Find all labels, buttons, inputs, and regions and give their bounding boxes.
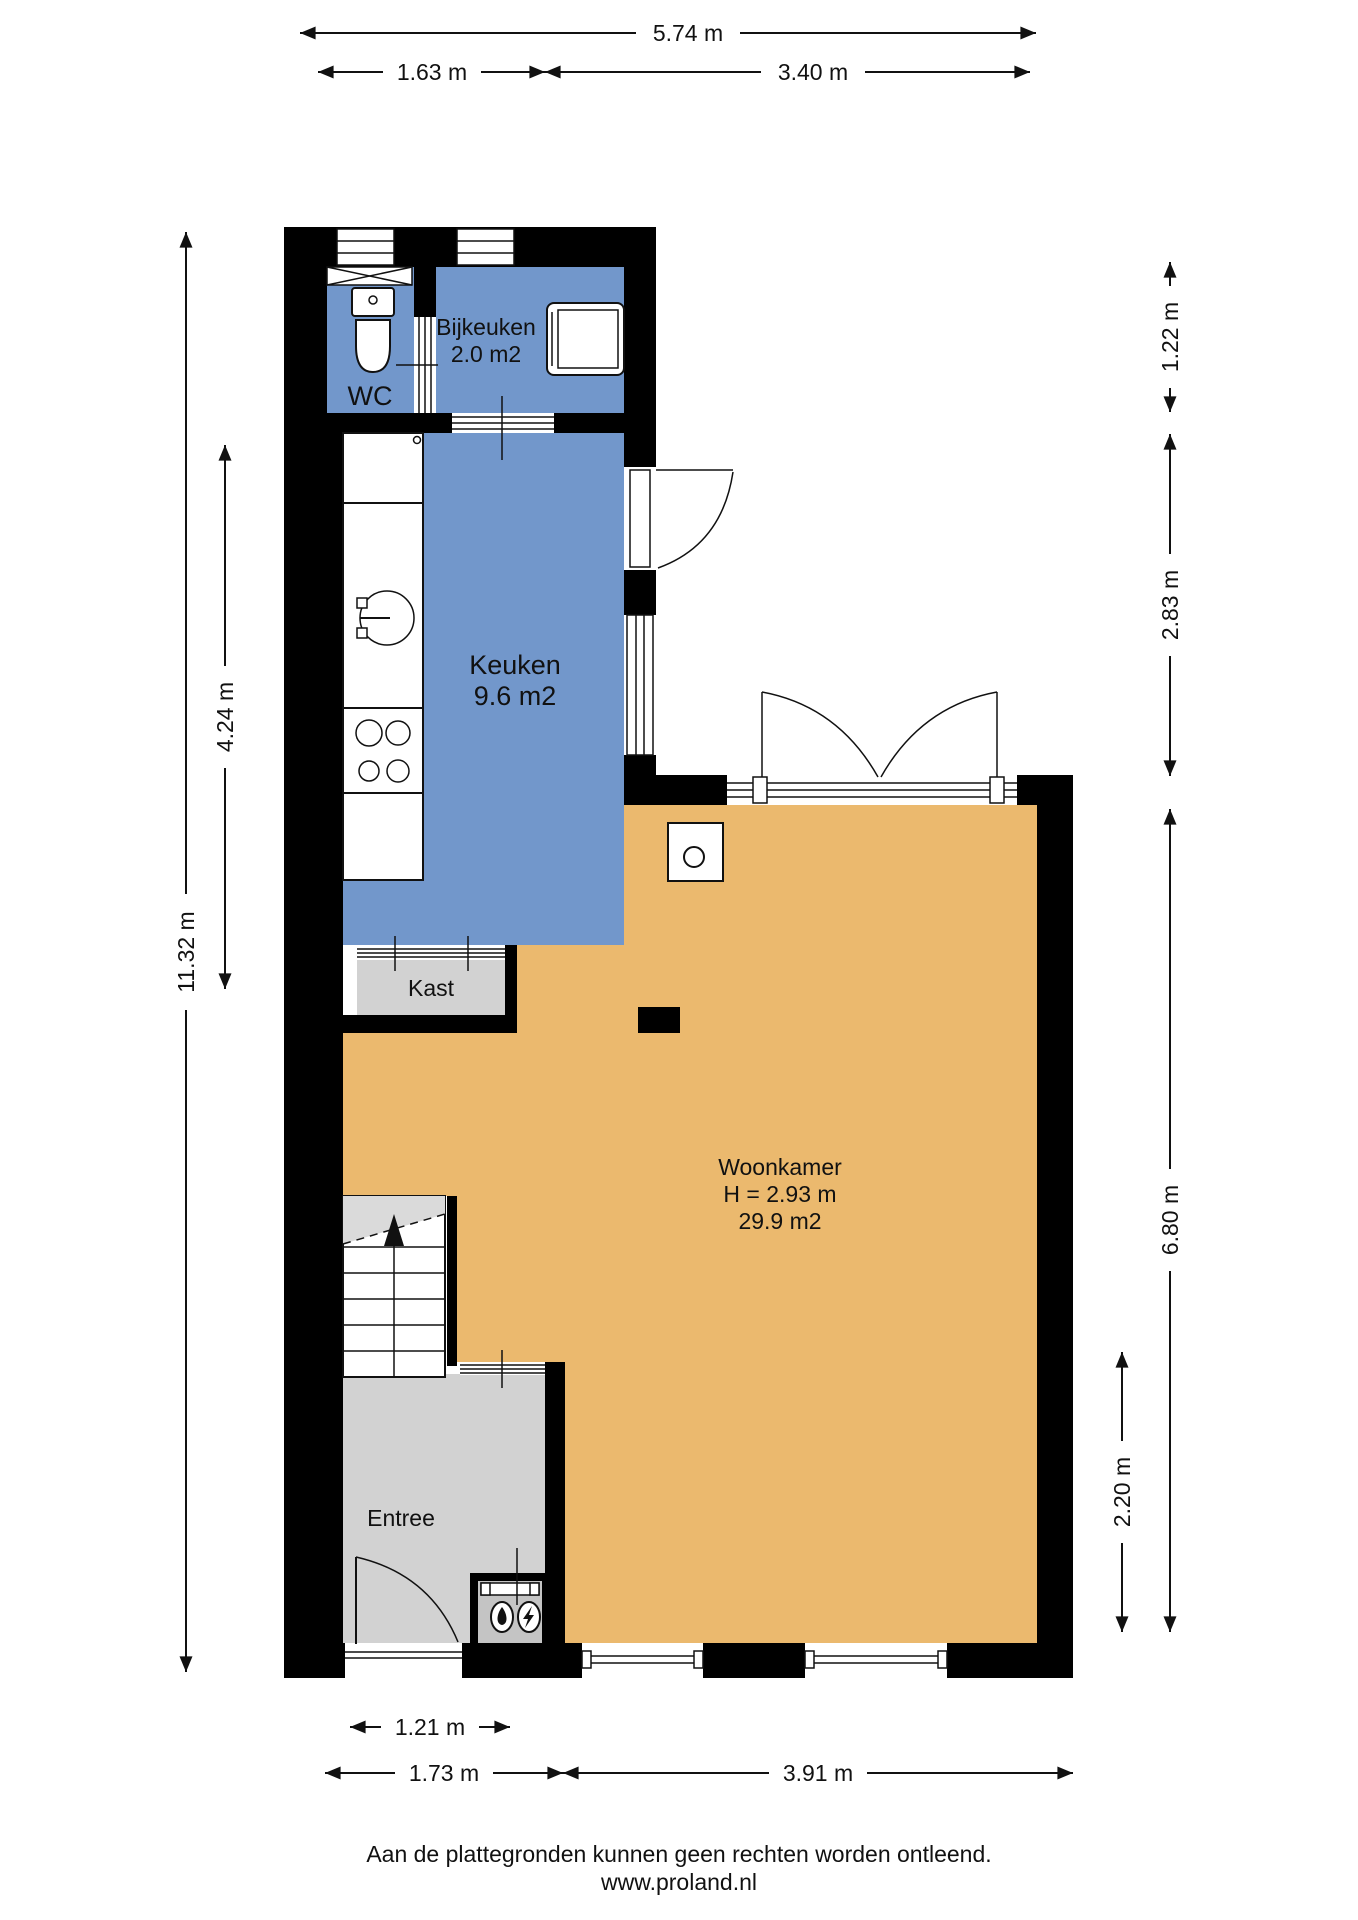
svg-text:3.40 m: 3.40 m	[778, 59, 848, 85]
dim-top-right-segment: 3.40 m	[545, 56, 1030, 88]
window-bottom-left	[582, 1643, 703, 1678]
woonkamer-ceiling-height: H = 2.93 m	[723, 1181, 836, 1207]
wall-right	[1037, 805, 1073, 1678]
dim-left-total: 11.32 m	[170, 232, 202, 1672]
wc-label: WC	[348, 381, 393, 411]
ventilation-icon	[327, 267, 412, 285]
washing-machine-icon	[547, 303, 624, 375]
svg-text:1.73 m: 1.73 m	[409, 1760, 479, 1786]
bijkeuken-area: 2.0 m2	[451, 341, 521, 367]
dim-top-total: 5.74 m	[300, 17, 1036, 49]
wood-stove-icon	[668, 823, 723, 881]
woonkamer-label: Woonkamer	[718, 1154, 842, 1180]
footer: Aan de plattegronden kunnen geen rechten…	[366, 1841, 991, 1895]
keuken-exterior-door	[624, 467, 733, 570]
svg-text:1.22 m: 1.22 m	[1157, 302, 1183, 372]
entree-label: Entree	[367, 1505, 435, 1531]
kitchen-counter	[343, 433, 423, 880]
svg-text:3.91 m: 3.91 m	[783, 1760, 853, 1786]
svg-text:4.24 m: 4.24 m	[212, 682, 238, 752]
window-bottom-right	[805, 1643, 947, 1678]
kast-label: Kast	[408, 975, 455, 1001]
floorplan-svg: 5.74 m 1.63 m 3.40 m 11.32 m 4.24 m	[0, 0, 1358, 1920]
french-door-arc-left	[762, 692, 878, 777]
dim-bottom-living: 3.91 m	[563, 1757, 1073, 1789]
svg-text:2.83 m: 2.83 m	[1157, 570, 1183, 640]
woonkamer-area: 29.9 m2	[738, 1208, 821, 1234]
footer-disclaimer: Aan de plattegronden kunnen geen rechten…	[366, 1841, 991, 1867]
svg-text:11.32 m: 11.32 m	[173, 911, 199, 992]
dim-right-living: 6.80 m	[1154, 809, 1186, 1632]
dim-bottom-door: 1.21 m	[350, 1711, 510, 1743]
door-swing-arc	[658, 472, 733, 568]
wall-stairs-right	[447, 1196, 457, 1366]
bijkeuken-label: Bijkeuken	[436, 314, 536, 340]
svg-text:5.74 m: 5.74 m	[653, 20, 723, 46]
svg-text:2.20 m: 2.20 m	[1109, 1457, 1135, 1527]
french-door-arc-right	[881, 692, 997, 777]
wall-left-upper	[284, 267, 327, 433]
dim-right-kitchen: 2.83 m	[1154, 434, 1186, 776]
dim-top-left-segment: 1.63 m	[318, 56, 545, 88]
footer-website: www.proland.nl	[600, 1869, 757, 1895]
keuken-label: Keuken	[469, 650, 561, 680]
dim-bottom-entree: 1.73 m	[325, 1757, 563, 1789]
wall-left-thick	[284, 433, 343, 1643]
svg-text:6.80 m: 6.80 m	[1157, 1185, 1183, 1255]
wall-kast-bottom	[343, 1015, 517, 1033]
electricity-meter-icon	[518, 1602, 540, 1632]
dim-right-utility: 1.22 m	[1154, 262, 1186, 412]
water-meter-icon	[491, 1602, 513, 1632]
wall-keuken-right-a	[624, 570, 656, 615]
dim-left-kitchen: 4.24 m	[209, 445, 241, 989]
chimney-block	[638, 1007, 680, 1033]
window-top-right	[457, 229, 514, 265]
keuken-window	[627, 615, 653, 755]
toilet-icon	[352, 288, 394, 372]
wall-wc-divider	[414, 267, 436, 317]
dim-right-lower: 2.20 m	[1106, 1352, 1138, 1632]
stairs-up-icon	[343, 1196, 445, 1377]
french-doors	[727, 692, 1017, 805]
svg-text:1.21 m: 1.21 m	[395, 1714, 465, 1740]
floorplan-page: 5.74 m 1.63 m 3.40 m 11.32 m 4.24 m	[0, 0, 1358, 1920]
keuken-area: 9.6 m2	[474, 681, 557, 711]
svg-text:1.63 m: 1.63 m	[397, 59, 467, 85]
window-top-left	[337, 229, 394, 265]
